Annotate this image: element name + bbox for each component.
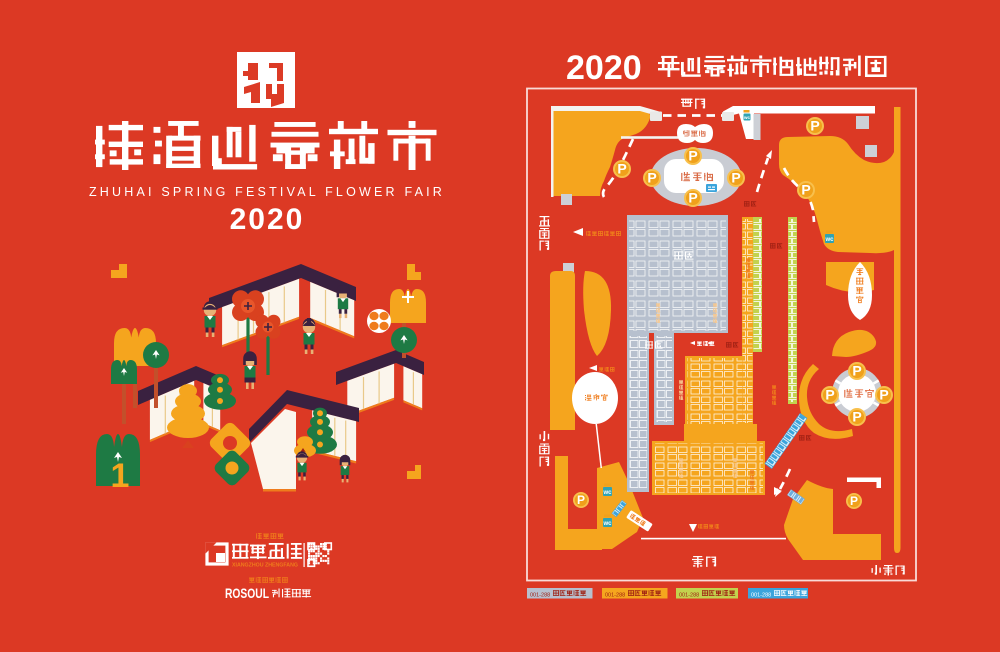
svg-text:P: P xyxy=(731,170,740,186)
svg-text:wc: wc xyxy=(602,521,612,527)
svg-text:wc: wc xyxy=(602,490,612,496)
svg-text:001-288: 001-288 xyxy=(530,593,550,599)
svg-text:wc: wc xyxy=(824,237,834,243)
svg-text:2020: 2020 xyxy=(566,49,642,87)
svg-text:XIANGZHOU ZHENGFANG: XIANGZHOU ZHENGFANG xyxy=(232,563,298,569)
svg-text:2020: 2020 xyxy=(230,203,305,236)
svg-text:P: P xyxy=(688,190,697,206)
svg-text:P: P xyxy=(852,409,861,425)
svg-text:P: P xyxy=(647,170,656,186)
svg-text:P: P xyxy=(617,161,626,177)
svg-text:001-288: 001-288 xyxy=(751,593,771,599)
svg-text:P: P xyxy=(801,182,810,198)
svg-text:P: P xyxy=(852,363,861,379)
svg-text:ROSOUL: ROSOUL xyxy=(225,585,269,601)
svg-text:ZHUHAI SPRING FESTIVAL FLOWER: ZHUHAI SPRING FESTIVAL FLOWER FAIR xyxy=(89,185,445,199)
svg-text:P: P xyxy=(688,148,697,164)
svg-text:001-288: 001-288 xyxy=(679,593,699,599)
svg-text:P: P xyxy=(850,494,858,508)
svg-text:P: P xyxy=(577,493,585,507)
svg-text:P: P xyxy=(810,118,819,134)
svg-text:001-288: 001-288 xyxy=(605,593,625,599)
svg-text:P: P xyxy=(825,387,834,403)
svg-text:wc: wc xyxy=(743,115,751,120)
svg-text:P: P xyxy=(879,387,888,403)
svg-text:1: 1 xyxy=(111,457,130,495)
